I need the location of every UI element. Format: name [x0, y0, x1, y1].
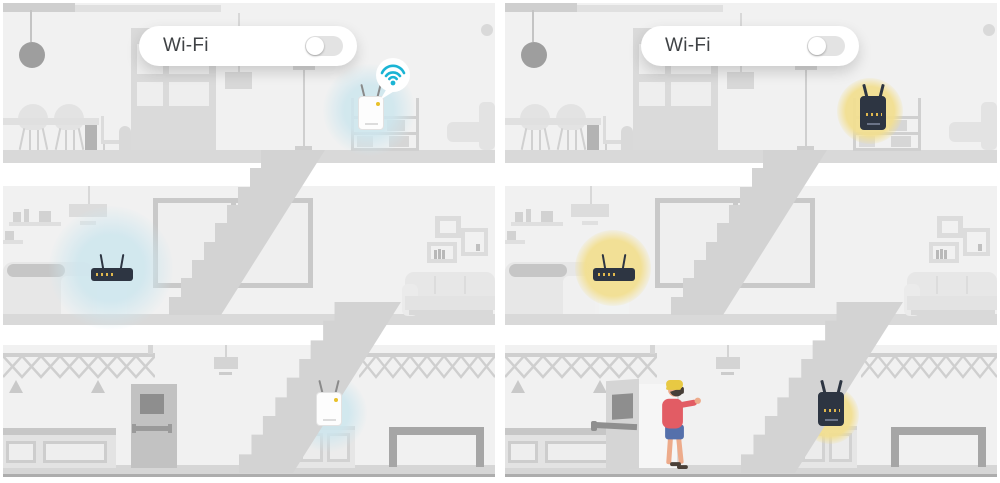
wall-sconce — [481, 24, 493, 36]
status-led — [376, 102, 380, 106]
brand-label — [365, 123, 378, 125]
sofa-base — [911, 310, 995, 315]
cone-marker — [9, 380, 23, 393]
pendant-shade — [214, 357, 238, 369]
shelf-post — [416, 98, 419, 150]
daybed-blanket — [509, 264, 567, 277]
book — [944, 250, 947, 259]
shelf-item — [515, 212, 523, 222]
door-push-bar — [134, 426, 172, 431]
wifi-toggle-switch[interactable] — [305, 36, 343, 56]
scene-panel-before: Wi-Fi — [3, 0, 495, 480]
bar-end — [168, 424, 172, 433]
sofa-seat — [907, 296, 997, 310]
range-extender-basement — [315, 380, 343, 428]
status-led — [334, 398, 338, 402]
shelf-books — [39, 211, 51, 222]
pendant-cord — [590, 186, 592, 204]
hanging-lamp-shade — [225, 72, 252, 89]
chair-shell — [520, 104, 550, 130]
sofa-back — [907, 272, 997, 298]
chair-leg — [37, 130, 39, 150]
wall-shelf — [9, 222, 61, 226]
work-table-leg — [476, 435, 484, 467]
floor-lamp-pole — [805, 70, 807, 146]
pendant-cord — [88, 186, 90, 204]
door-window — [612, 393, 633, 419]
plant-silhouette — [119, 126, 131, 150]
ceiling-truss — [3, 352, 155, 380]
status-leds — [866, 113, 882, 116]
truss-post — [148, 345, 153, 354]
shelf-item — [5, 231, 14, 240]
chair-back — [603, 116, 606, 142]
staircase-upper — [671, 150, 827, 315]
sofa-seam — [464, 276, 466, 294]
pendant-diffuser — [721, 372, 734, 375]
sofa-seam — [966, 276, 968, 294]
shelf-board — [853, 148, 921, 151]
armchair-seat — [949, 122, 991, 142]
shelf-item — [526, 209, 531, 222]
cone-marker — [511, 380, 525, 393]
chair-leg — [42, 128, 49, 150]
pendant-shade — [571, 204, 609, 217]
chair-leg — [65, 130, 67, 150]
ceiling-strip — [577, 5, 723, 12]
scene-panel-after: Wi-Fi — [505, 0, 997, 480]
dining-table-leg — [85, 125, 97, 150]
status-leds — [824, 409, 840, 412]
ground-baseline — [3, 474, 495, 477]
counter-panel — [508, 441, 538, 463]
pendant-lamp — [521, 42, 547, 68]
wall-shelf — [511, 222, 563, 226]
shelf-item — [13, 212, 21, 222]
chair-leg — [29, 130, 31, 150]
brand-label — [825, 419, 838, 421]
pendant-shade — [716, 357, 740, 369]
dining-chair — [53, 104, 87, 150]
sofa-back — [405, 272, 495, 298]
range-extender-upper — [859, 84, 887, 132]
router — [91, 254, 133, 281]
bar-end — [591, 421, 597, 431]
truss-post — [650, 345, 655, 354]
chair-leg — [557, 128, 564, 150]
shelf-item — [24, 209, 29, 222]
toggle-knob — [306, 37, 324, 55]
pendant-cord — [30, 10, 32, 42]
ceiling-beam — [3, 3, 75, 12]
picture-frame — [937, 216, 963, 238]
frame-item — [476, 244, 480, 251]
counter-body — [3, 435, 116, 468]
counter-top — [3, 428, 116, 435]
basement-door-closed — [131, 384, 177, 468]
chair-leg — [78, 128, 85, 150]
ground-baseline — [505, 474, 997, 477]
sofa-seam — [936, 276, 938, 294]
ceiling-beam — [505, 3, 577, 12]
window-pane — [671, 82, 711, 106]
box-shelf — [427, 242, 457, 263]
shelf-box — [891, 136, 911, 147]
status-leds — [96, 273, 114, 276]
window-pane — [169, 82, 209, 106]
chair-leg — [539, 130, 541, 150]
wall-sconce — [983, 24, 995, 36]
sofa-seam — [434, 276, 436, 294]
counter-panel — [43, 441, 107, 463]
dining-table-top — [505, 118, 601, 125]
book — [936, 250, 939, 259]
book — [434, 250, 437, 259]
door-window — [140, 394, 164, 414]
person — [645, 377, 707, 472]
chair-leg — [567, 130, 569, 150]
pendant-diffuser — [219, 372, 232, 375]
ceiling-truss — [505, 352, 657, 380]
book — [442, 250, 445, 259]
wifi-toggle-card: Wi-Fi — [139, 26, 357, 66]
wifi-toggle-card: Wi-Fi — [641, 26, 859, 66]
extender-body — [818, 392, 844, 426]
chair-leg — [103, 144, 105, 150]
work-table-top — [891, 427, 986, 435]
counter-panel — [6, 441, 36, 463]
cone-marker — [91, 380, 105, 393]
brand-label — [323, 419, 336, 421]
chair-shell — [18, 104, 48, 130]
extender-body — [316, 392, 342, 426]
book — [940, 249, 943, 259]
dining-table-leg — [587, 125, 599, 150]
frame-item — [978, 244, 982, 251]
range-extender-basement — [817, 380, 845, 428]
chair-leg — [605, 144, 607, 150]
chair-back — [101, 116, 104, 142]
picture-frame — [963, 228, 990, 256]
chair-leg — [73, 130, 75, 150]
chair-shell — [556, 104, 586, 130]
pendant-lamp — [19, 42, 45, 68]
chair-leg — [580, 128, 587, 150]
chair-leg — [531, 130, 533, 150]
plant-silhouette — [621, 126, 633, 150]
dining-chair — [555, 104, 589, 150]
status-leds — [598, 273, 616, 276]
picture-frame — [435, 216, 461, 238]
dining-chair — [17, 104, 51, 150]
sofa-seat — [405, 296, 495, 310]
shelf-item — [507, 231, 516, 240]
chair-leg — [19, 128, 26, 150]
chair-leg — [55, 128, 62, 150]
chair-leg — [575, 130, 577, 150]
wall-shelf — [505, 240, 525, 244]
dining-chair — [519, 104, 553, 150]
staircase-upper — [169, 150, 325, 315]
chair-leg — [521, 128, 528, 150]
extender-body — [860, 96, 886, 130]
wifi-toggle-switch[interactable] — [807, 36, 845, 56]
picture-frame — [461, 228, 488, 256]
wifi-signal-icon — [373, 56, 413, 102]
chair-leg — [544, 128, 551, 150]
door-push-bar — [593, 422, 637, 430]
wifi-label: Wi-Fi — [665, 35, 711, 57]
box-shelf — [929, 242, 959, 263]
armchair-seat — [447, 122, 489, 142]
toggle-knob — [808, 37, 826, 55]
window-pane — [639, 82, 665, 106]
pendant-cord — [532, 10, 534, 42]
work-table-leg — [978, 435, 986, 467]
floor-lamp-pole — [303, 70, 305, 146]
bar-end — [132, 424, 136, 433]
book — [438, 249, 441, 259]
hanging-lamp-shade — [727, 72, 754, 89]
sofa-base — [409, 310, 493, 315]
wifi-label: Wi-Fi — [163, 35, 209, 57]
chair-shell — [54, 104, 84, 130]
work-table-top — [389, 427, 484, 435]
dining-table-top — [3, 118, 99, 125]
shelf-post — [918, 98, 921, 150]
brand-label — [867, 123, 880, 125]
wall-shelf — [3, 240, 23, 244]
shelf-books — [541, 211, 553, 222]
window-pane — [137, 82, 163, 106]
router — [593, 254, 635, 281]
ceiling-strip — [75, 5, 221, 12]
illustration-stage: Wi-Fi — [0, 0, 1000, 483]
pendant-diffuser — [582, 221, 598, 225]
